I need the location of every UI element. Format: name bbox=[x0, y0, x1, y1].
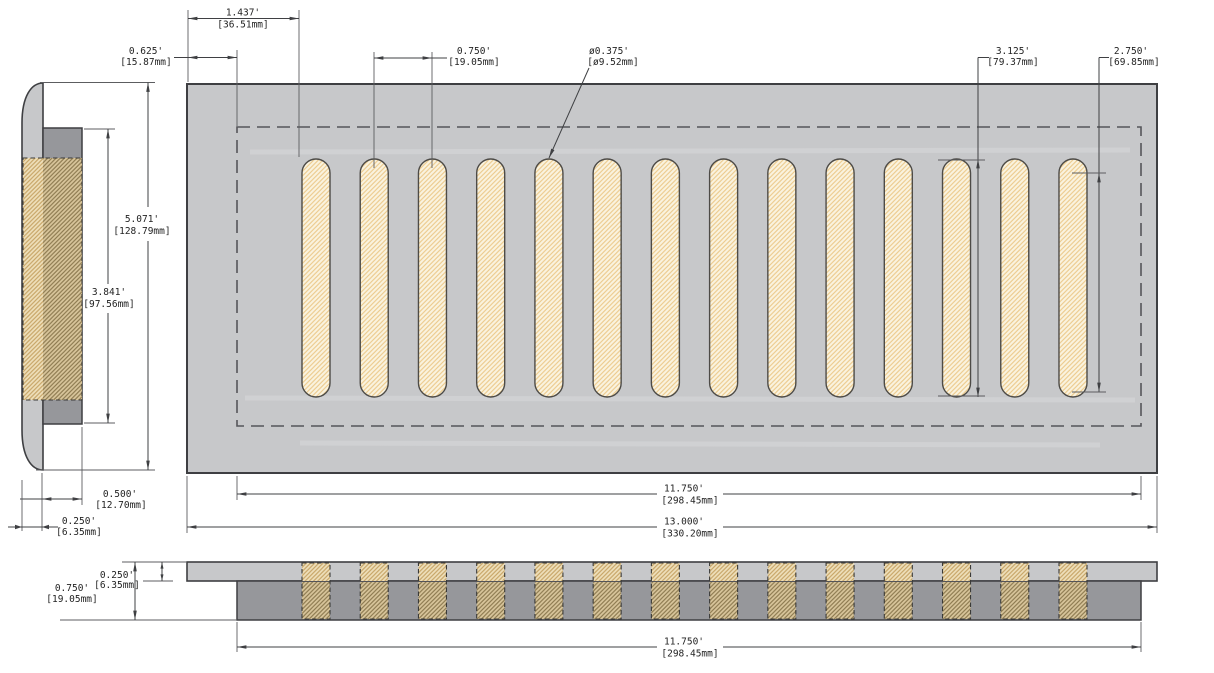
front-slot-strip-lower bbox=[943, 582, 971, 619]
dim-front-plate-thickness-mm: [6.35mm] bbox=[94, 580, 140, 591]
vent-slot bbox=[651, 159, 679, 397]
dim-slot-spacing-mm: [19.05mm] bbox=[448, 57, 499, 68]
vent-slot bbox=[535, 159, 563, 397]
front-slot-strip-lower bbox=[593, 582, 621, 619]
front-slot-strip-upper bbox=[943, 563, 971, 581]
front-slot-strip-upper bbox=[651, 563, 679, 581]
vent-slot bbox=[710, 159, 738, 397]
side-view: 5.071' [128.79mm] 3.841' [97.56mm] 0.500… bbox=[8, 83, 171, 539]
front-slot-strip-upper bbox=[768, 563, 796, 581]
side-opening-hatch-dark bbox=[43, 158, 82, 400]
vent-slot bbox=[360, 159, 388, 397]
dim-inset-offset-in: 0.625' bbox=[129, 46, 163, 57]
front-view: 0.750' [19.05mm] 0.250' [6.35mm] 11.750'… bbox=[46, 562, 1157, 660]
dim-front-height-mm: [19.05mm] bbox=[46, 594, 97, 605]
front-slot-strip-upper bbox=[477, 563, 505, 581]
dim-inset-offset-mm: [15.87mm] bbox=[120, 57, 171, 68]
dim-slot-straight-in: 2.750' bbox=[1114, 46, 1148, 57]
front-slot-strip-upper bbox=[1001, 563, 1029, 581]
dim-front-height-in: 0.750' bbox=[55, 583, 89, 594]
dim-front-opening: 11.750' [298.45mm] bbox=[237, 622, 1141, 660]
dim-overall-width-mm: [330.20mm] bbox=[661, 529, 718, 540]
dim-flange-depth: 0.250' [6.35mm] bbox=[8, 480, 102, 538]
vent-slot bbox=[943, 159, 971, 397]
dim-duct-depth-in: 0.500' bbox=[103, 489, 137, 500]
vent-slot bbox=[884, 159, 912, 397]
dim-opening-width-in: 11.750' bbox=[664, 484, 704, 495]
dim-slot-offset-mm: [36.51mm] bbox=[217, 20, 268, 31]
dim-flange-depth-in: 0.250' bbox=[62, 516, 96, 527]
arrowhead bbox=[42, 525, 49, 529]
dim-overall-width-in: 13.000' bbox=[664, 517, 704, 528]
vent-slot bbox=[593, 159, 621, 397]
front-slot-strip-upper bbox=[1059, 563, 1087, 581]
front-slot-strip-lower bbox=[710, 582, 738, 619]
front-slot-strip-lower bbox=[1059, 582, 1087, 619]
front-slot-strip-upper bbox=[884, 563, 912, 581]
front-slot-strip-upper bbox=[535, 563, 563, 581]
vent-slot bbox=[768, 159, 796, 397]
front-slot-strip-lower bbox=[477, 582, 505, 619]
dim-opening-height-mm: [97.56mm] bbox=[83, 299, 134, 310]
dim-slot-spacing-in: 0.750' bbox=[457, 46, 491, 57]
dim-flange-depth-mm: [6.35mm] bbox=[56, 527, 102, 538]
vent-slot bbox=[418, 159, 446, 397]
front-slot-strip-lower bbox=[302, 582, 330, 619]
dim-slot-length-mm: [79.37mm] bbox=[987, 57, 1038, 68]
dim-opening-height: 3.841' [97.56mm] bbox=[83, 129, 134, 423]
dim-front-opening-in: 11.750' bbox=[664, 637, 704, 648]
dim-opening-height-in: 3.841' bbox=[92, 287, 126, 298]
front-slot-strip-lower bbox=[826, 582, 854, 619]
side-opening-hatch-light bbox=[23, 158, 43, 400]
front-slot-strip-lower bbox=[651, 582, 679, 619]
vent-slot bbox=[1001, 159, 1029, 397]
vent-slot bbox=[477, 159, 505, 397]
front-slot-strip-lower bbox=[768, 582, 796, 619]
front-slot-strip-lower bbox=[360, 582, 388, 619]
dim-overall-height-in: 5.071' bbox=[125, 214, 159, 225]
vent-slot bbox=[826, 159, 854, 397]
vent-slot bbox=[302, 159, 330, 397]
dim-front-plate-thickness: 0.250' [6.35mm] bbox=[94, 562, 173, 591]
front-slot-strip-upper bbox=[826, 563, 854, 581]
dim-opening-width: 11.750' [298.45mm] bbox=[237, 476, 1141, 507]
vent-slot bbox=[1059, 159, 1087, 397]
front-slot-strip-upper bbox=[302, 563, 330, 581]
dim-overall-height-mm: [128.79mm] bbox=[113, 226, 170, 237]
drawing-canvas: 5.071' [128.79mm] 3.841' [97.56mm] 0.500… bbox=[0, 0, 1214, 673]
front-slot-strip-lower bbox=[418, 582, 446, 619]
dim-slot-straight-mm: [69.85mm] bbox=[1108, 57, 1159, 68]
dim-slot-width-mm: [ø9.52mm] bbox=[587, 57, 638, 68]
front-slot-strip-lower bbox=[535, 582, 563, 619]
arrowhead bbox=[15, 525, 22, 529]
front-slot-strip-upper bbox=[418, 563, 446, 581]
dim-slot-offset-in: 1.437' bbox=[226, 8, 260, 19]
dim-slot-width-in: ø0.375' bbox=[589, 46, 629, 57]
front-slot-strip-upper bbox=[360, 563, 388, 581]
front-slot-strip-lower bbox=[1001, 582, 1029, 619]
front-slot-strip-upper bbox=[710, 563, 738, 581]
dim-opening-width-mm: [298.45mm] bbox=[661, 496, 718, 507]
vent-register-drawing: 5.071' [128.79mm] 3.841' [97.56mm] 0.500… bbox=[0, 0, 1214, 673]
top-view: 1.437' [36.51mm] 0.625' [15.87mm] 0.750'… bbox=[120, 8, 1159, 540]
front-slot-strip-upper bbox=[593, 563, 621, 581]
dim-duct-depth-mm: [12.70mm] bbox=[95, 500, 146, 511]
front-slot-strip-lower bbox=[884, 582, 912, 619]
dim-slot-length-in: 3.125' bbox=[996, 46, 1030, 57]
dim-front-opening-mm: [298.45mm] bbox=[661, 649, 718, 660]
